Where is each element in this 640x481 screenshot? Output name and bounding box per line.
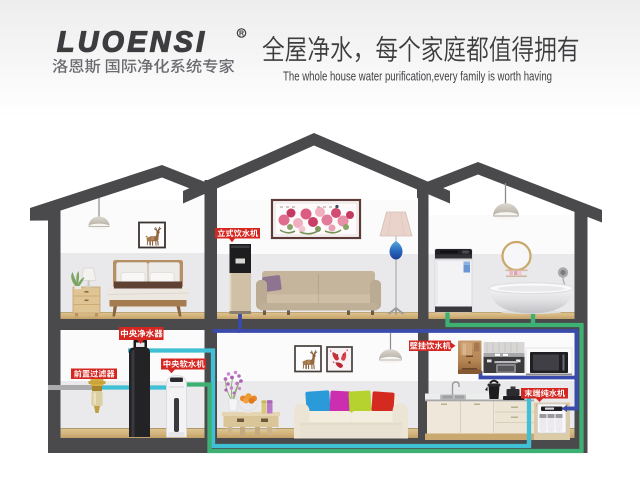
- svg-text:LUOENSI: LUOENSI: [57, 27, 207, 59]
- svg-text:The whole house water purifica: The whole house water purification,every…: [283, 70, 552, 84]
- svg-text:R: R: [239, 31, 244, 38]
